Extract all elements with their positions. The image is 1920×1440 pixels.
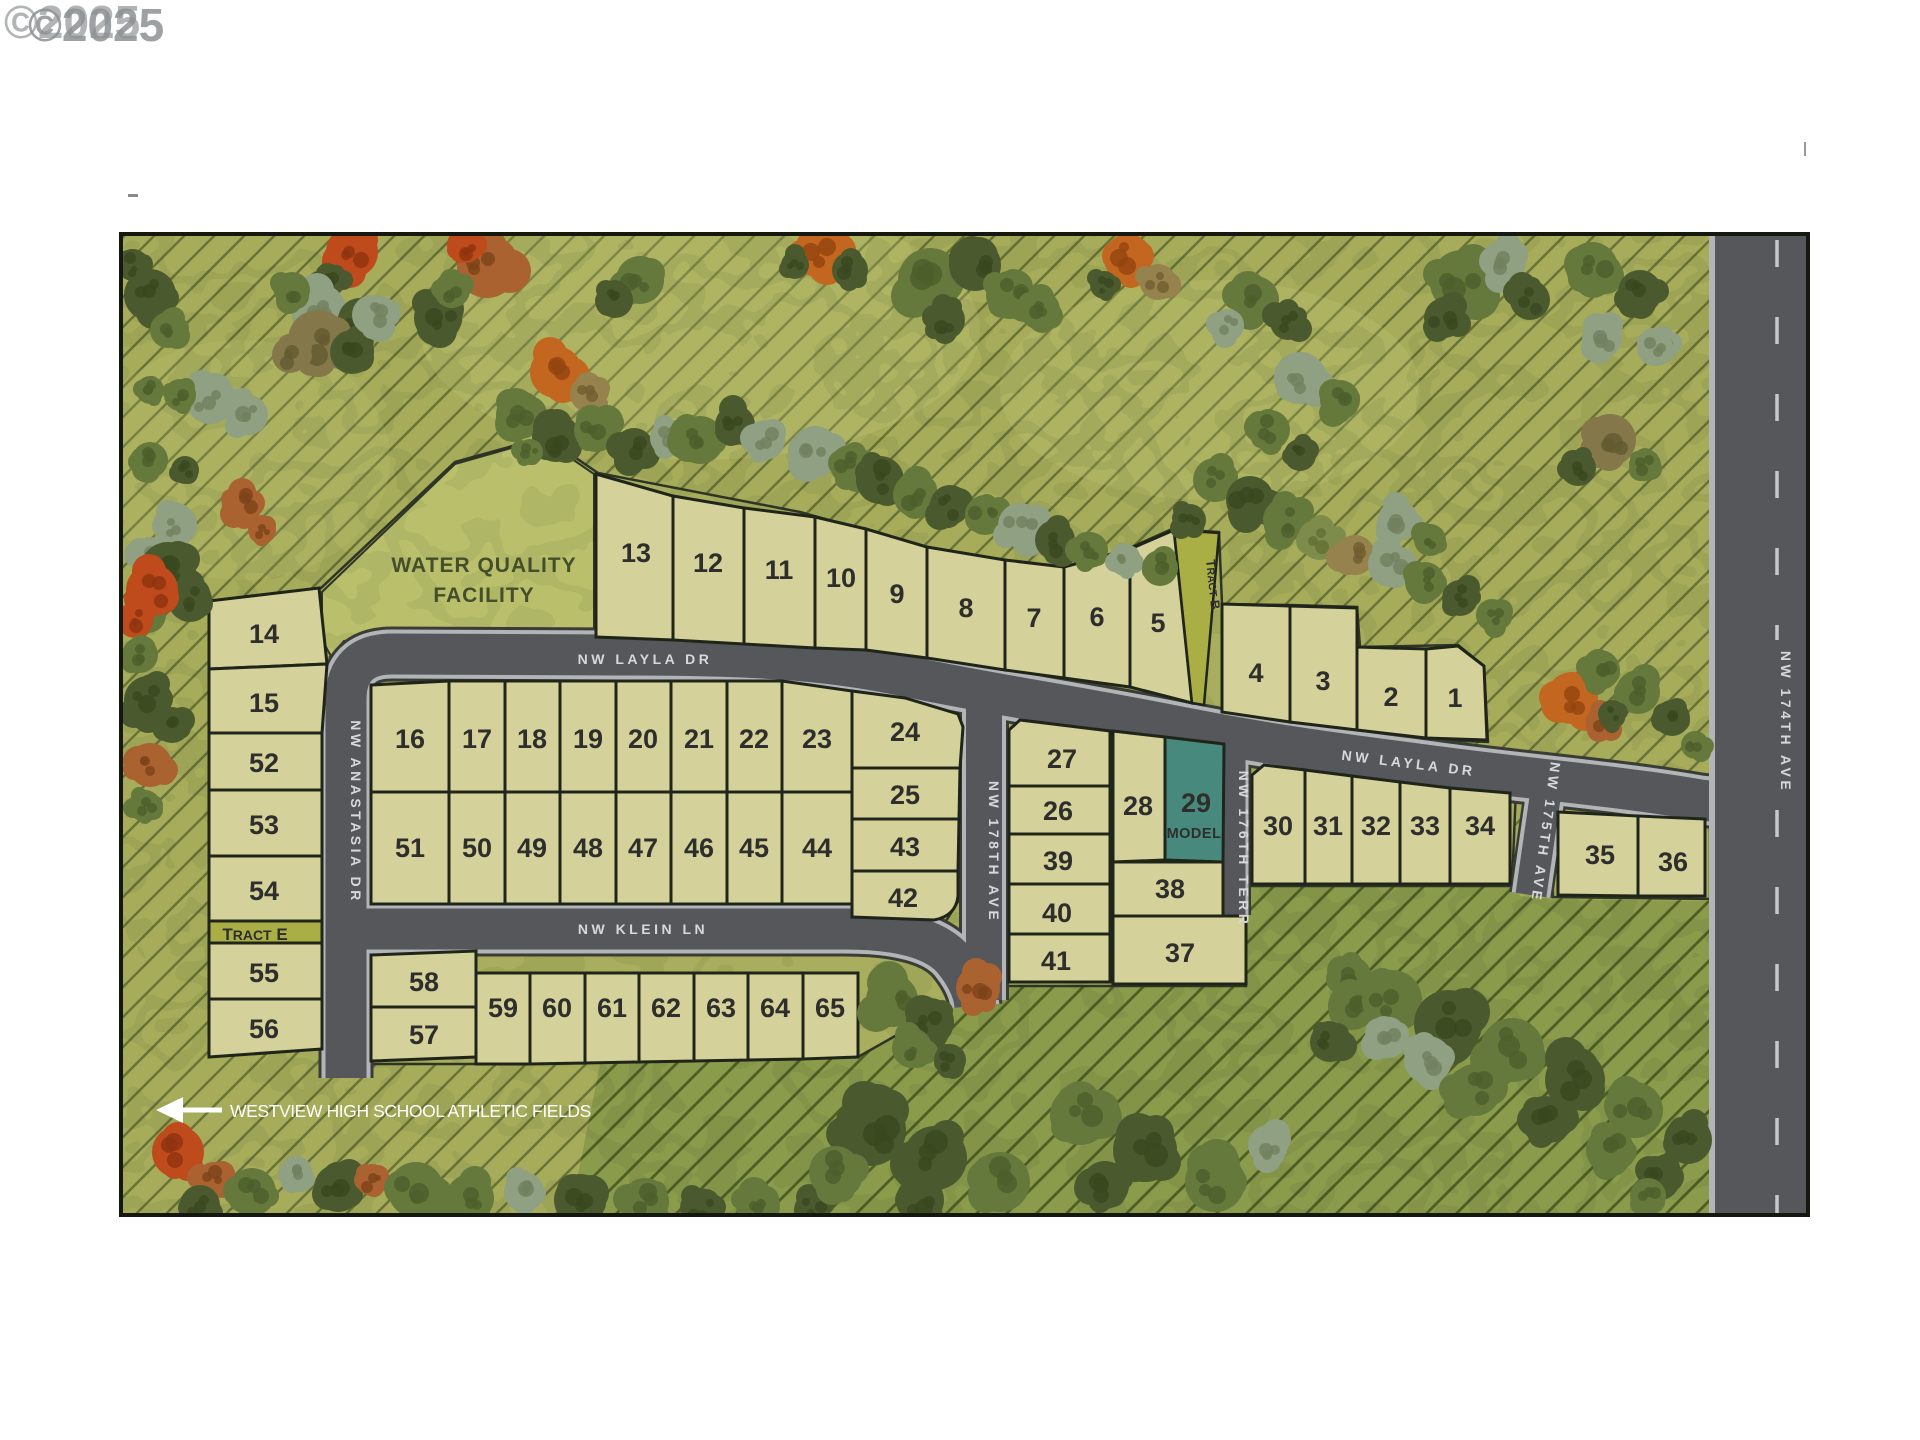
svg-text:52: 52 (249, 748, 279, 778)
svg-text:37: 37 (1165, 938, 1195, 968)
svg-text:41: 41 (1041, 946, 1071, 976)
svg-text:34: 34 (1465, 811, 1495, 841)
svg-text:63: 63 (706, 993, 736, 1023)
svg-text:44: 44 (802, 833, 832, 863)
svg-text:19: 19 (573, 724, 603, 754)
svg-text:30: 30 (1263, 811, 1293, 841)
svg-text:48: 48 (573, 833, 603, 863)
svg-text:28: 28 (1123, 791, 1153, 821)
svg-text:10: 10 (826, 563, 856, 593)
svg-text:22: 22 (739, 724, 769, 754)
svg-text:6: 6 (1089, 602, 1104, 632)
svg-text:17: 17 (462, 724, 492, 754)
svg-text:56: 56 (249, 1014, 279, 1044)
svg-text:3: 3 (1315, 666, 1330, 696)
svg-text:11: 11 (765, 555, 794, 585)
svg-text:WESTVIEW HIGH SCHOOL ATHLETIC: WESTVIEW HIGH SCHOOL ATHLETIC FIELDS (230, 1101, 591, 1121)
svg-text:5: 5 (1150, 608, 1165, 638)
svg-text:NW 174TH AVE: NW 174TH AVE (1778, 651, 1794, 793)
svg-text:9: 9 (889, 579, 904, 609)
svg-text:20: 20 (628, 724, 658, 754)
svg-text:59: 59 (488, 993, 518, 1023)
svg-text:53: 53 (249, 810, 279, 840)
svg-text:54: 54 (249, 876, 279, 906)
svg-text:MODEL: MODEL (1167, 826, 1222, 842)
svg-text:39: 39 (1043, 846, 1073, 876)
svg-text:40: 40 (1042, 898, 1072, 928)
svg-text:65: 65 (815, 993, 845, 1023)
svg-text:27: 27 (1047, 744, 1077, 774)
svg-text:51: 51 (395, 833, 425, 863)
svg-text:NW ANASTASIA DR: NW ANASTASIA DR (348, 720, 364, 903)
svg-text:NW 178TH AVE: NW 178TH AVE (986, 781, 1002, 923)
svg-text:21: 21 (684, 724, 714, 754)
svg-text:46: 46 (684, 833, 714, 863)
svg-text:35: 35 (1585, 840, 1615, 870)
svg-text:12: 12 (693, 548, 723, 578)
svg-text:26: 26 (1043, 796, 1073, 826)
svg-text:1: 1 (1447, 683, 1462, 713)
svg-text:55: 55 (249, 958, 279, 988)
svg-text:FACILITY: FACILITY (433, 584, 534, 607)
svg-text:45: 45 (739, 833, 769, 863)
svg-text:8: 8 (958, 593, 973, 623)
svg-text:31: 31 (1313, 811, 1343, 841)
svg-text:NW KLEIN LN: NW KLEIN LN (578, 921, 708, 937)
svg-text:2: 2 (1383, 682, 1398, 712)
svg-text:15: 15 (249, 688, 279, 718)
svg-text:16: 16 (395, 724, 425, 754)
svg-text:18: 18 (517, 724, 547, 754)
svg-text:23: 23 (802, 724, 832, 754)
svg-text:©2025: ©2025 (4, 0, 140, 48)
svg-text:64: 64 (760, 993, 790, 1023)
svg-text:49: 49 (517, 833, 547, 863)
svg-text:13: 13 (621, 538, 651, 568)
svg-text:4: 4 (1248, 658, 1263, 688)
svg-text:WATER QUALITY: WATER QUALITY (391, 554, 576, 577)
svg-text:62: 62 (651, 993, 681, 1023)
svg-text:60: 60 (542, 993, 572, 1023)
svg-text:24: 24 (890, 717, 920, 747)
svg-text:57: 57 (409, 1020, 439, 1050)
svg-text:33: 33 (1410, 811, 1440, 841)
svg-text:42: 42 (888, 883, 918, 913)
svg-text:NW LAYLA DR: NW LAYLA DR (578, 651, 713, 667)
svg-text:29: 29 (1181, 788, 1211, 818)
svg-text:58: 58 (409, 967, 439, 997)
svg-text:14: 14 (249, 619, 279, 649)
svg-text:TRACT E: TRACT E (222, 925, 287, 944)
svg-text:50: 50 (462, 833, 492, 863)
svg-text:36: 36 (1658, 847, 1688, 877)
svg-text:61: 61 (597, 993, 627, 1023)
svg-text:25: 25 (890, 780, 920, 810)
svg-text:38: 38 (1155, 874, 1185, 904)
svg-text:NW 176TH TERR: NW 176TH TERR (1236, 771, 1252, 928)
svg-text:47: 47 (628, 833, 658, 863)
svg-text:43: 43 (890, 832, 920, 862)
svg-text:32: 32 (1361, 811, 1391, 841)
svg-text:7: 7 (1026, 603, 1041, 633)
